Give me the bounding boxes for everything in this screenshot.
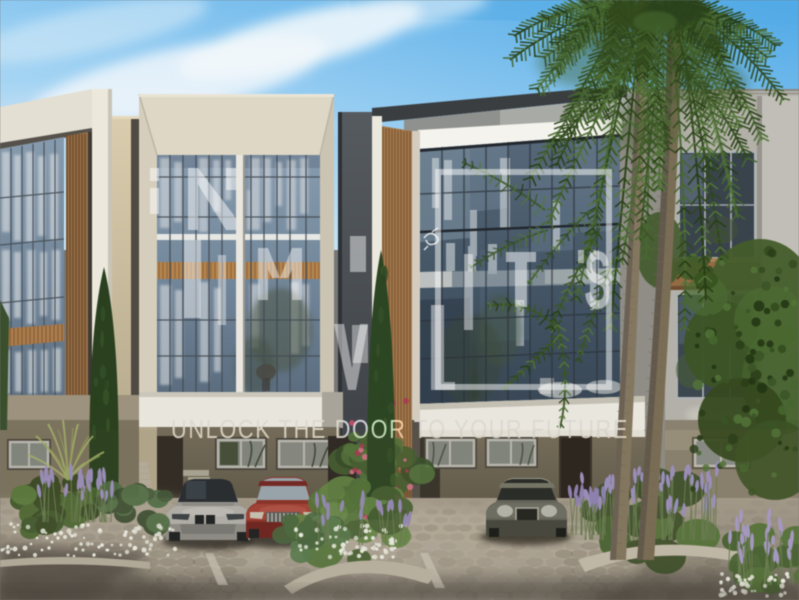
svg-text:S: S xyxy=(584,235,611,326)
